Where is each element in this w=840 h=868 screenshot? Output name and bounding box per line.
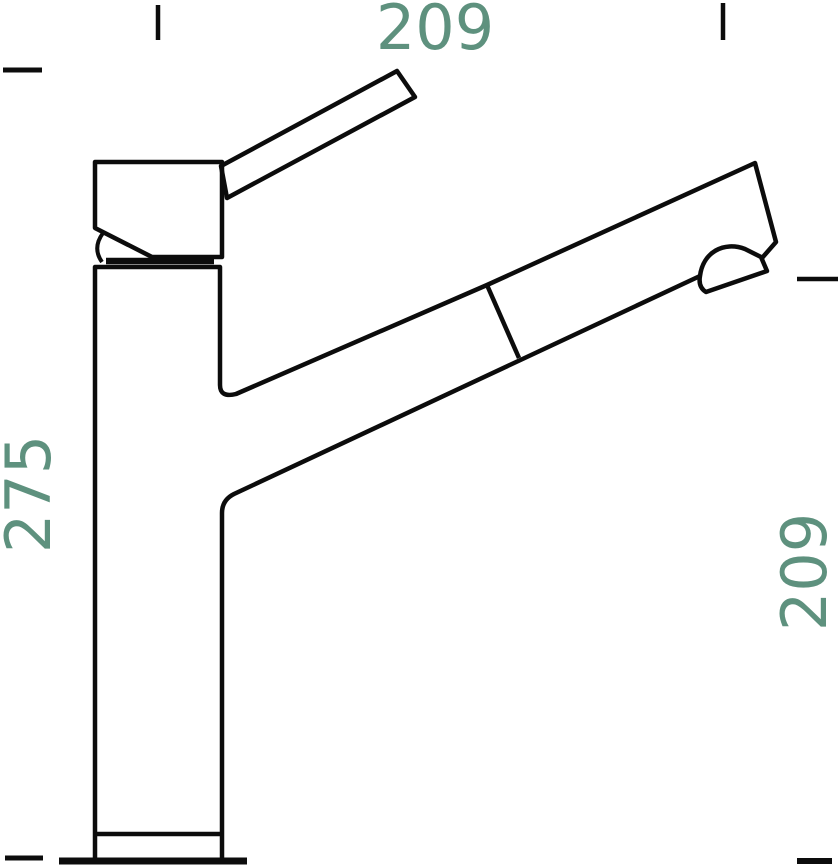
faucet-lever-handle — [221, 71, 415, 198]
faucet-line-drawing — [0, 0, 840, 868]
faucet-dimension-diagram: 209 275 209 — [0, 0, 840, 868]
pullout-spray-head — [700, 246, 767, 292]
dimension-label-top: 209 — [370, 0, 500, 59]
lever-pivot-arc — [97, 233, 103, 262]
spout-underside-and-body-right — [222, 276, 700, 862]
faucet-head-block — [95, 162, 222, 257]
spout-joint-line — [487, 285, 519, 358]
faucet-body-and-spout-top — [95, 163, 776, 862]
dimension-label-height: 275 — [0, 429, 60, 559]
dimension-label-right: 209 — [774, 507, 836, 637]
